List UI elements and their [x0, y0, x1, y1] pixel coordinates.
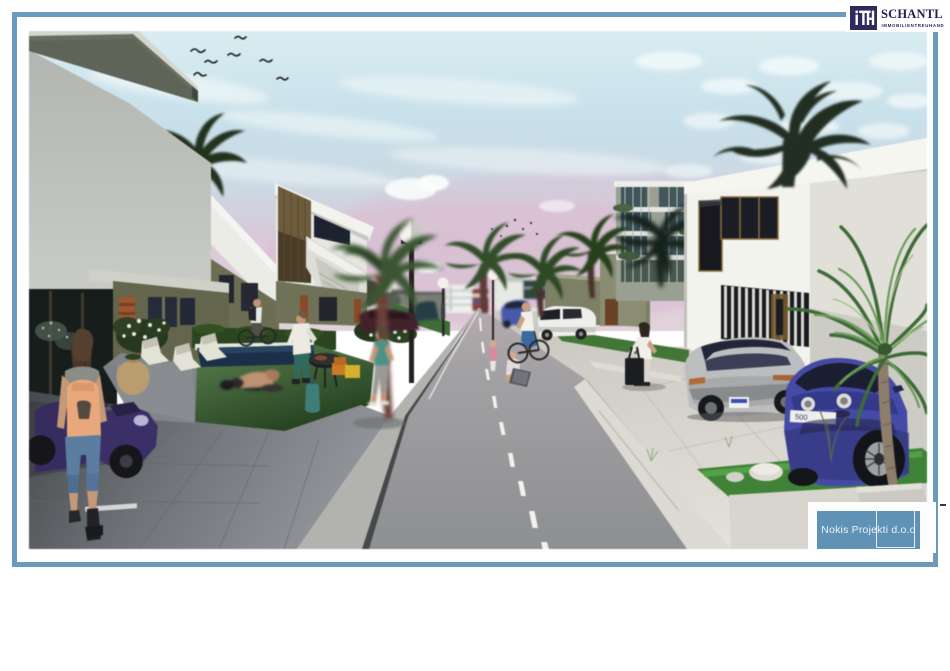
svg-text:500: 500	[795, 412, 808, 422]
